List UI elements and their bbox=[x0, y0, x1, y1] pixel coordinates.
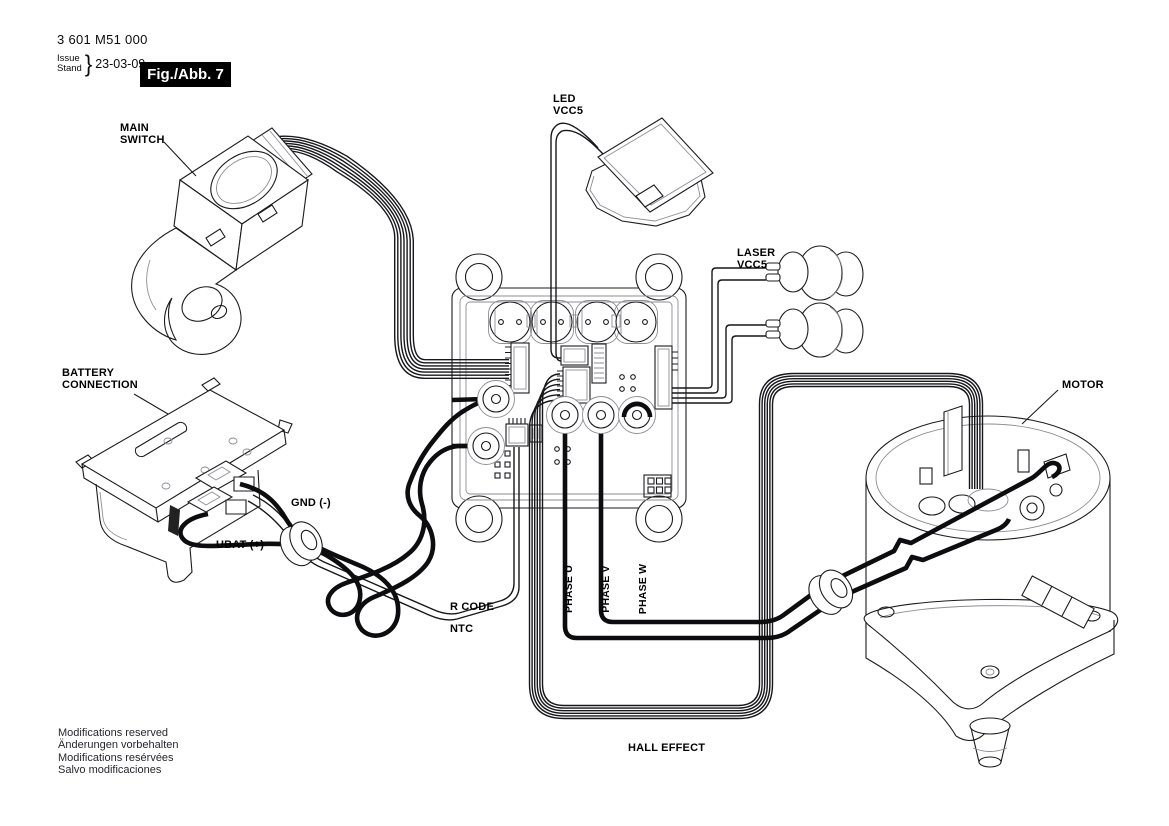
phase-v-label: PHASE V bbox=[600, 557, 612, 621]
led-label-line2: VCC5 bbox=[553, 105, 583, 117]
led-drawing bbox=[586, 118, 713, 226]
motor-spindle bbox=[970, 718, 1010, 767]
rcode-label: R CODE bbox=[450, 601, 494, 613]
issue-stand-block: Issue Stand } 23-03-09 bbox=[57, 53, 145, 75]
stand-label: Stand bbox=[57, 64, 82, 75]
modifications-notice: Modifications reserved Änderungen vorbeh… bbox=[58, 727, 178, 776]
issue-stand-brace: } bbox=[85, 52, 92, 75]
wiring-diagram-figure: 3 601 M51 000 Issue Stand } 23-03-09 Fig… bbox=[0, 0, 1169, 826]
motor-label: MOTOR bbox=[1062, 379, 1104, 391]
led-label-line1: LED bbox=[553, 93, 583, 105]
phase-terminals bbox=[547, 397, 656, 434]
diagram-linework bbox=[0, 0, 1169, 826]
led-label: LED VCC5 bbox=[553, 93, 583, 117]
battery-label-line1: BATTERY bbox=[62, 367, 138, 379]
battery-label-line2: CONNECTION bbox=[62, 379, 138, 391]
notice-line-de: Änderungen vorbehalten bbox=[58, 739, 178, 751]
figure-number-badge: Fig./Abb. 7 bbox=[140, 62, 231, 87]
laser-label-line1: LASER bbox=[737, 247, 775, 259]
battery-ferrite-bead bbox=[274, 516, 329, 572]
laser-label: LASER VCC5 bbox=[737, 247, 775, 271]
part-number: 3 601 M51 000 bbox=[57, 32, 148, 47]
phase-u-label: PHASE U bbox=[563, 557, 575, 621]
laser-label-line2: VCC5 bbox=[737, 259, 775, 271]
ntc-label: NTC bbox=[450, 623, 473, 635]
main-switch-label: MAIN SWITCH bbox=[120, 122, 165, 146]
issue-date: 23-03-09 bbox=[95, 57, 145, 71]
main-switch-label-line1: MAIN bbox=[120, 122, 165, 134]
laser-diode-upper-drawing bbox=[766, 246, 863, 300]
gnd-label: GND (-) bbox=[291, 497, 331, 509]
motor-drawing bbox=[864, 406, 1118, 767]
notice-line-en: Modifications reserved bbox=[58, 727, 178, 739]
main-switch-drawing bbox=[132, 128, 312, 354]
hall-effect-label: HALL EFFECT bbox=[628, 742, 705, 754]
phase-w-label: PHASE W bbox=[637, 557, 649, 621]
battery-connection-drawing bbox=[76, 378, 292, 582]
main-switch-label-line2: SWITCH bbox=[120, 134, 165, 146]
ubat-label: UBAT (+) bbox=[216, 539, 264, 551]
laser-diode-lower-drawing bbox=[766, 303, 863, 357]
notice-line-fr: Modifications resérvées bbox=[58, 752, 178, 764]
notice-line-es: Salvo modificaciones bbox=[58, 764, 178, 776]
battery-connection-label: BATTERY CONNECTION bbox=[62, 367, 138, 391]
